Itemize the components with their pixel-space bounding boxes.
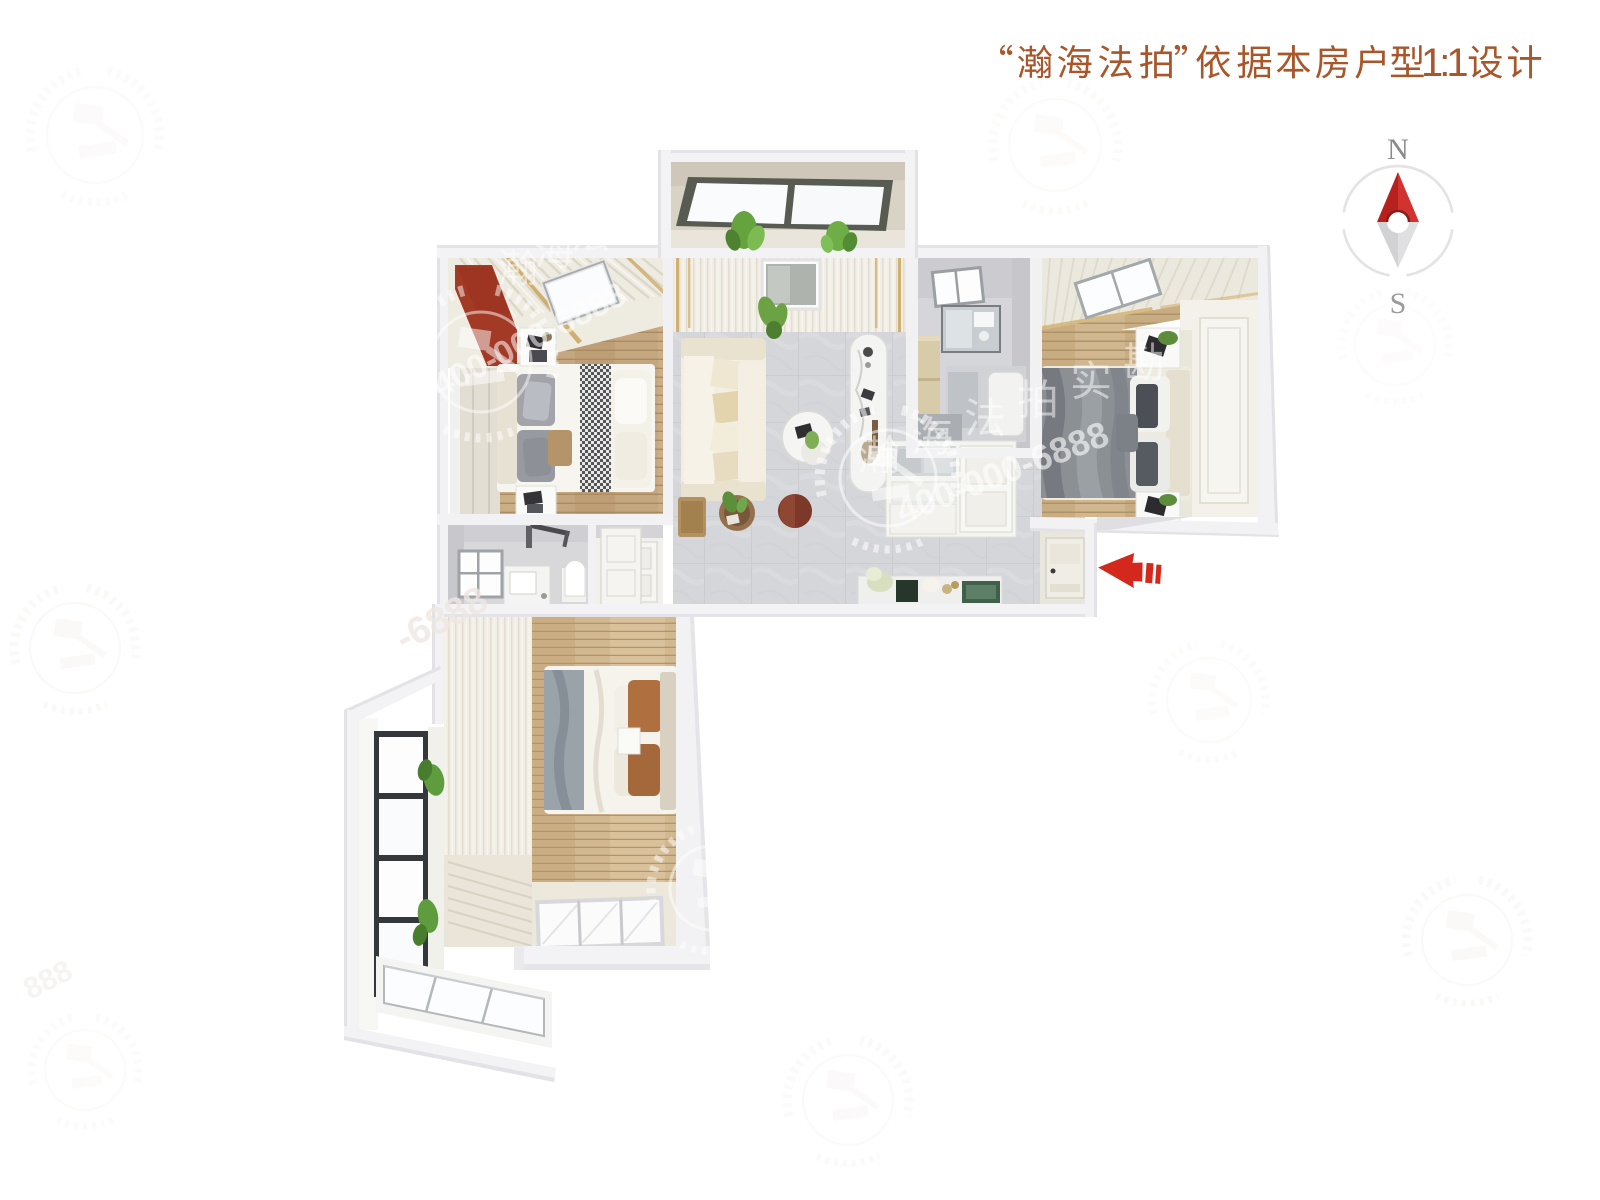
svg-text:S: S [1390, 287, 1407, 320]
svg-text:1:1: 1:1 [1421, 41, 1467, 85]
svg-text:N: N [1387, 133, 1409, 166]
